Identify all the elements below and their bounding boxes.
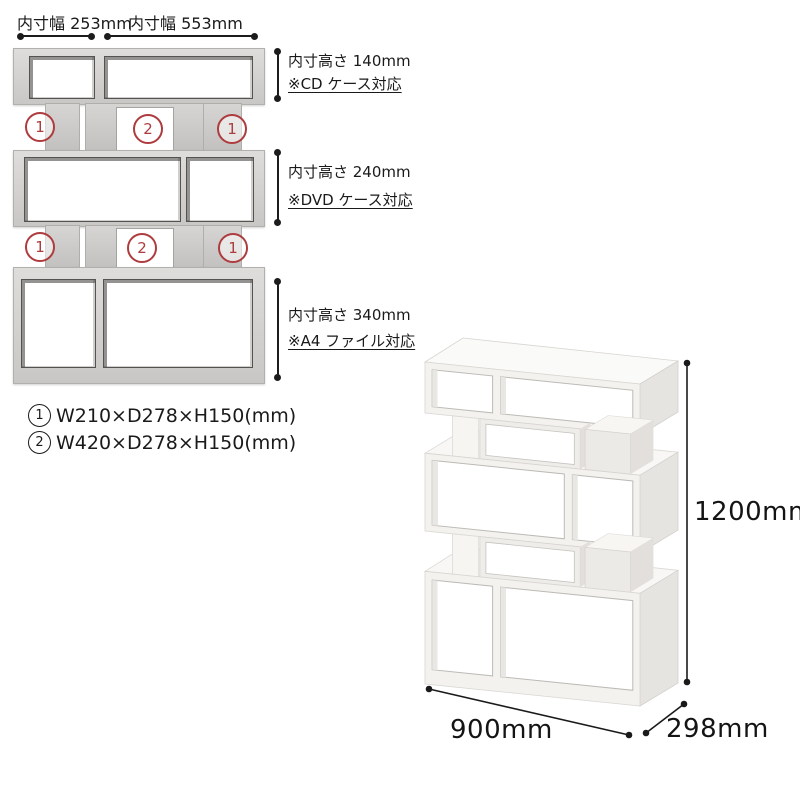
dimension-line xyxy=(277,52,279,98)
shelf-top-box xyxy=(13,48,265,105)
product-dimension-diagram: 内寸幅 253mm 内寸幅 553mm 1 2 1 1 xyxy=(0,0,800,800)
spec-text: W210×D278×H150(mm) xyxy=(56,405,296,427)
shelf-opening xyxy=(103,279,253,368)
dimension-dot xyxy=(274,149,281,156)
marker-circle: 1 xyxy=(218,233,248,263)
marker-circle: 1 xyxy=(217,114,247,144)
dimension-dot xyxy=(88,33,95,40)
inner-height-note: ※CD ケース対応 xyxy=(288,73,402,94)
spec-text: W420×D278×H150(mm) xyxy=(56,432,296,454)
dimension-dot xyxy=(104,33,111,40)
dimension-line xyxy=(22,35,89,37)
inner-height-label: 内寸高さ 340mm xyxy=(288,304,411,325)
dimension-dot xyxy=(251,33,258,40)
dimension-dot xyxy=(17,33,24,40)
shelf-opening xyxy=(186,157,254,222)
inner-height-note: ※DVD ケース対応 xyxy=(288,189,413,210)
overall-height-label: 1200mm xyxy=(694,497,800,527)
shelf-opening xyxy=(29,56,95,99)
dimension-dot xyxy=(274,219,281,226)
spec-line: 1 W210×D278×H150(mm) xyxy=(28,404,296,427)
inner-height-note: ※A4 ファイル対応 xyxy=(288,330,415,351)
dimension-line xyxy=(109,35,252,37)
shelf-bottom-box xyxy=(13,267,265,384)
marker-circle: 2 xyxy=(133,114,163,144)
shelf-opening xyxy=(24,157,181,222)
marker-circle: 1 xyxy=(25,112,55,142)
overall-depth-label: 298mm xyxy=(666,714,769,744)
shelf-opening xyxy=(21,279,96,368)
dimension-line xyxy=(277,153,279,221)
dimension-line-height xyxy=(684,360,691,686)
spec-marker-circle: 1 xyxy=(28,404,51,427)
spec-marker-circle: 2 xyxy=(28,431,51,454)
dimension-dot xyxy=(274,278,281,285)
inner-height-label: 内寸高さ 140mm xyxy=(288,50,411,71)
marker-circle: 2 xyxy=(127,233,157,263)
marker-circle: 1 xyxy=(25,232,55,262)
spec-line: 2 W420×D278×H150(mm) xyxy=(28,431,296,454)
dimension-dot xyxy=(274,48,281,55)
shelf-middle-box xyxy=(13,150,265,227)
inner-width-label-right: 内寸幅 553mm xyxy=(128,10,243,34)
shelf-3d-illustration xyxy=(400,335,800,765)
shelf-opening xyxy=(104,56,253,99)
dimension-line xyxy=(277,282,279,376)
inner-width-label-left: 内寸幅 253mm xyxy=(17,10,132,34)
inner-height-label: 内寸高さ 240mm xyxy=(288,161,411,182)
dimension-dot xyxy=(274,95,281,102)
overall-width-label: 900mm xyxy=(450,715,553,745)
dimension-dot xyxy=(274,374,281,381)
